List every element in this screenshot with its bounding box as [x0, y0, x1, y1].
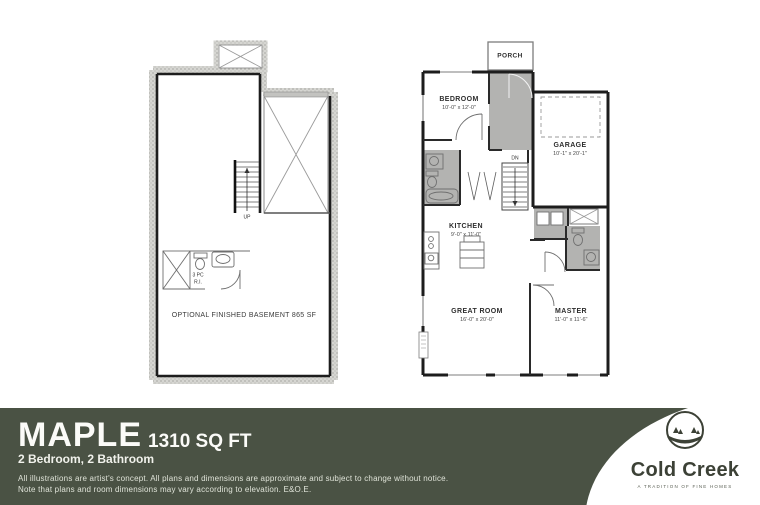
builder-logo-emblem-icon — [662, 410, 708, 452]
room-dims-bedroom: 10'-0" x 12'-0" — [442, 105, 476, 111]
plan-subtitle: 2 Bedroom, 2 Bathroom — [18, 452, 154, 466]
room-label-master: MASTER — [555, 308, 587, 316]
room-dims-master: 11'-0" x 11'-6" — [554, 317, 587, 323]
room-dims-kitchen: 9'-0" x 11'-0" — [451, 232, 481, 238]
basement-bath-label-line2: R.I. — [194, 280, 202, 286]
disclaimer-line-1: All illustrations are artist's concept. … — [18, 474, 448, 483]
footer-band: MAPLE 1310 SQ FT 2 Bedroom, 2 Bathroom A… — [0, 408, 760, 505]
room-label-kitchen: KITCHEN — [449, 223, 483, 231]
plan-title: MAPLE — [18, 416, 142, 455]
room-label-bedroom: BEDROOM — [439, 96, 478, 104]
basement-caption: OPTIONAL FINISHED BASEMENT 865 SF — [172, 312, 317, 320]
basement-bath-label-line1: 3 PC — [192, 273, 203, 279]
floorplan-drawing — [0, 0, 760, 405]
main-floor-plan-graphic — [419, 42, 608, 378]
builder-logo-name: Cold Creek — [610, 459, 760, 482]
room-dims-great-room: 16'-0" x 20'-0" — [460, 317, 494, 323]
builder-logo-tagline: A TRADITION OF FINE HOMES — [610, 484, 760, 489]
room-label-great-room: GREAT ROOM — [451, 308, 503, 316]
basement-plan-graphic — [153, 43, 334, 380]
basement-stairs-up-label: UP — [244, 215, 251, 221]
room-dims-garage: 10'-1" x 20'-1" — [553, 151, 587, 157]
plan-sqft: 1310 SQ FT — [148, 431, 252, 453]
builder-logo: Cold Creek A TRADITION OF FINE HOMES — [610, 410, 760, 489]
room-label-garage: GARAGE — [553, 142, 586, 150]
room-label-porch: PORCH — [497, 52, 522, 59]
disclaimer-line-2: Note that plans and room dimensions may … — [18, 485, 311, 494]
main-stairs-dn-label: DN — [511, 156, 518, 162]
flyer-page: UP 3 PC R.I. OPTIONAL FINISHED BASEMENT … — [0, 0, 760, 505]
